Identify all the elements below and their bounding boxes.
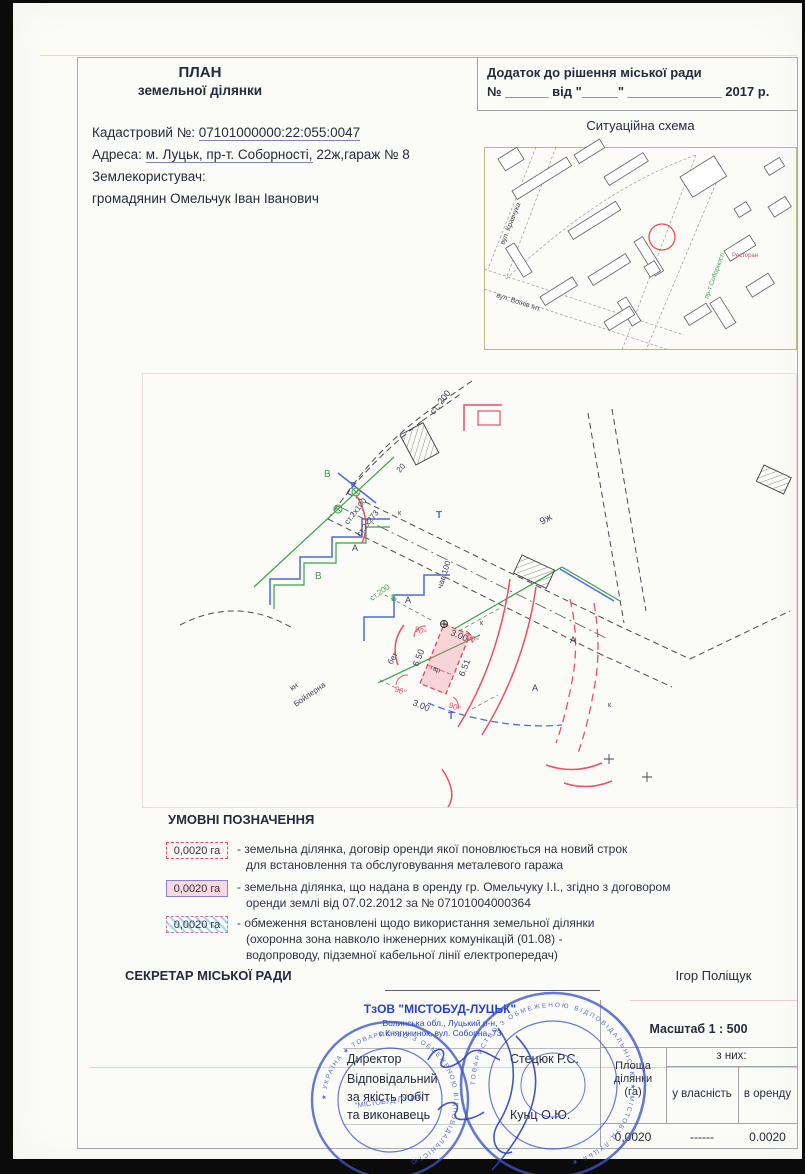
table-col1-divider bbox=[666, 1047, 667, 1123]
landuser-value: громадянин Омельчук Іван Іванович bbox=[92, 191, 319, 206]
executor-row-bottom-line bbox=[343, 1124, 600, 1125]
responsible-line2: за якість робіт bbox=[347, 1090, 430, 1104]
label-T-blue3: Т bbox=[448, 711, 454, 722]
label-k3: к bbox=[608, 702, 612, 709]
legend-item0-line1: - земельна ділянка, договір оренди якої … bbox=[237, 842, 627, 856]
cadastral-line: Кадастровий №: 07101000000:22:055:0047 bbox=[92, 125, 360, 140]
label-A1: А bbox=[405, 595, 411, 605]
label-V-green1: В bbox=[324, 469, 331, 480]
annex-box-bottom-line bbox=[477, 110, 797, 111]
legend-item2-line2: (охоронна зона навколо інженерних комуні… bbox=[246, 932, 562, 946]
table-value-area: 0,0020 bbox=[600, 1130, 666, 1144]
legend-item1-line1: - земельна ділянка, що надана в оренду г… bbox=[237, 880, 670, 894]
dim-650: 6.50 bbox=[411, 648, 427, 668]
legend-title: УМОВНІ ПОЗНАЧЕННЯ bbox=[168, 812, 314, 827]
cadastral-value: 07101000000:22:055:0047 bbox=[199, 125, 360, 141]
secretary-name: Ігор Поліщук bbox=[630, 968, 797, 983]
label-boilerna: Бойлерна bbox=[292, 680, 328, 709]
table-header-bottom-line bbox=[600, 1123, 797, 1124]
legend-item1-line2: оренди землі від 07.02.2012 за № 0710100… bbox=[246, 896, 531, 910]
annex-box-left-line bbox=[477, 57, 478, 110]
responsible-line3: та виконавець bbox=[347, 1108, 430, 1122]
label-st200-green: ст.200 bbox=[368, 582, 392, 603]
label-B-green: Б bbox=[391, 593, 397, 603]
survey-point-marker bbox=[441, 621, 448, 628]
label-V-green2: В bbox=[315, 571, 322, 582]
scan-artifact-line bbox=[90, 1067, 797, 1068]
map-buildings bbox=[498, 139, 791, 330]
legend-item2-line3: водопроводу, підземної кабельної лінії е… bbox=[246, 948, 558, 962]
label-A4: А bbox=[532, 683, 538, 693]
responsible-line1: Відповідальний bbox=[347, 1072, 437, 1086]
plan-buildings-hatched bbox=[400, 423, 791, 589]
legend-swatch-leased-parcel: 0,0020 га bbox=[166, 880, 228, 897]
director-row-top-line bbox=[343, 1048, 600, 1049]
table-value-rent: 0.0020 bbox=[738, 1130, 797, 1144]
executor-name: Кунц О.Ю. bbox=[510, 1108, 570, 1122]
scan-artifact-line bbox=[630, 1000, 797, 1001]
firm-address1: Волинська обл., Луцький р-н, bbox=[325, 1018, 555, 1028]
map-location-marker bbox=[649, 224, 675, 250]
table-ownership-header: у власність bbox=[666, 1088, 738, 1100]
cadastral-label: Кадастровий №: bbox=[92, 125, 195, 140]
label-A2: А bbox=[352, 543, 358, 553]
scanned-land-plan-document: { "header": { "title1": "ПЛАН", "title2"… bbox=[0, 0, 805, 1174]
map-street-sobornosti: пр-т Соборності bbox=[702, 252, 726, 300]
table-area-header-l3: (га) bbox=[600, 1086, 666, 1098]
table-span-header: з них: bbox=[666, 1050, 797, 1062]
label-kn: кн bbox=[288, 681, 300, 693]
address-value-rest: 22ж,гараж № 8 bbox=[316, 147, 409, 162]
landuser-label: Землекористувач: bbox=[92, 169, 206, 184]
address-value-underlined: м. Луцьк, пр-т. Соборності, bbox=[146, 147, 313, 163]
table-span-underline bbox=[666, 1066, 797, 1067]
plan-centerline bbox=[338, 506, 608, 639]
label-k1: к bbox=[398, 510, 402, 517]
plan-cross-marks bbox=[604, 754, 652, 782]
label-T-blue1: Т bbox=[349, 481, 355, 492]
map-street-kravchuka: вул. Кравчука bbox=[499, 202, 522, 246]
annex-line1: Додаток до рішення міської ради bbox=[487, 65, 702, 80]
scale-label: Масштаб 1 : 500 bbox=[600, 1022, 797, 1036]
legend-swatch-renewed-lease: 0,0020 га bbox=[166, 842, 228, 859]
legend-area-0: 0,0020 га bbox=[174, 845, 221, 857]
address-line: Адреса: м. Луцьк, пр-т. Соборності, 22ж,… bbox=[92, 147, 410, 162]
secretary-label: СЕКРЕТАР МІСЬКОЇ РАДИ bbox=[125, 968, 292, 983]
label-20: 20 bbox=[395, 461, 408, 474]
map-street-voiniv: вул. Воїнів Інт. bbox=[495, 291, 542, 313]
situation-map: вул. Кравчука вул. Воїнів Інт. пр-т Собо… bbox=[484, 147, 797, 350]
page-subtitle: земельної ділянки bbox=[118, 83, 282, 98]
secretary-signature-line bbox=[385, 990, 600, 991]
situation-schema-title: Ситуаційна схема bbox=[484, 118, 797, 133]
angle-90-tr: 90° bbox=[465, 633, 480, 646]
map-restaurant-label: Ресторан bbox=[732, 253, 758, 259]
address-label: Адреса: bbox=[92, 147, 142, 162]
legend-area-1: 0,0020 га bbox=[174, 883, 221, 895]
page-title: ПЛАН bbox=[118, 64, 282, 81]
plan-red-building bbox=[478, 411, 500, 425]
firm-address2: с.Княгининок, вул. Соборна, 73 bbox=[325, 1028, 555, 1038]
scan-artifact-line bbox=[40, 55, 797, 56]
legend-swatch-restriction-zone: 0,0020 га bbox=[166, 916, 228, 933]
label-k2: к bbox=[480, 620, 484, 627]
plan-power-dashed bbox=[556, 599, 598, 753]
label-T-blue2: Т bbox=[436, 510, 442, 521]
director-name: Стецюк Р.С. bbox=[510, 1052, 579, 1066]
table-value-ownership: ------ bbox=[666, 1130, 738, 1144]
plan-drawing: ст. 200 ст.2х100 ст.2х273 ст.200 чав.100… bbox=[142, 373, 797, 808]
table-rent-header: в оренду bbox=[738, 1088, 797, 1100]
table-area-header-l2: ділянки bbox=[600, 1073, 666, 1085]
angle-90-bl: 90° bbox=[393, 685, 408, 698]
firm-name: ТзОВ "МІСТОБУД-ЛУЦЬК" bbox=[325, 1002, 555, 1016]
legend-item0-line2: для встановлення та обслуговування метал… bbox=[246, 858, 563, 872]
director-label: Директор bbox=[347, 1052, 401, 1066]
label-A3: А bbox=[570, 635, 576, 645]
annex-line2: № ______ від "_____" _____________ 2017 … bbox=[487, 84, 769, 99]
table-top-line bbox=[600, 1047, 797, 1048]
legend-item2-line1: - обмеження встановлені щодо використанн… bbox=[237, 916, 595, 930]
label-9zh: 9ж bbox=[538, 512, 554, 528]
table-area-header-l1: Площа bbox=[600, 1060, 666, 1072]
dim-300-bottom: 3.00 bbox=[411, 698, 431, 714]
legend-area-2: 0,0020 га bbox=[174, 919, 221, 931]
plan-roads bbox=[180, 381, 790, 687]
